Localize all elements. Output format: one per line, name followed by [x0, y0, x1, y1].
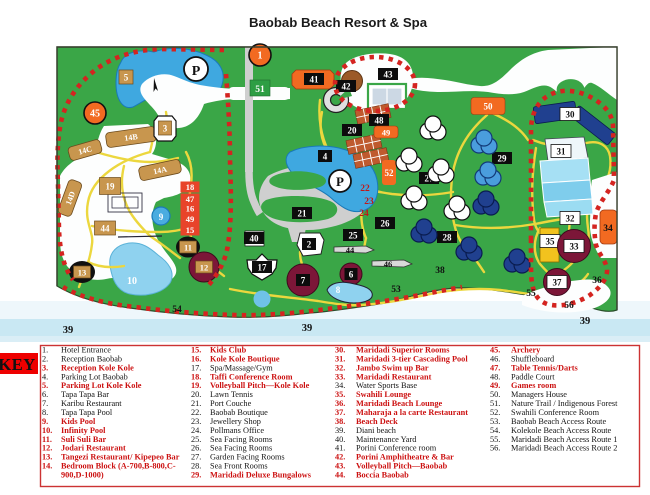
- svg-text:39.: 39.: [335, 426, 345, 435]
- svg-text:41.: 41.: [335, 444, 345, 453]
- svg-text:Tangezi Restaurant/ Kipepeo Ba: Tangezi Restaurant/ Kipepeo Bar: [61, 453, 180, 462]
- svg-text:22.: 22.: [191, 408, 201, 417]
- svg-text:49: 49: [382, 127, 391, 137]
- svg-text:30.: 30.: [335, 346, 345, 355]
- svg-text:Maridadi Beach Access Route 2: Maridadi Beach Access Route 2: [511, 444, 617, 453]
- svg-text:Maharaja a la carte Restaurant: Maharaja a la carte Restaurant: [356, 408, 468, 417]
- svg-text:12.: 12.: [42, 444, 52, 453]
- svg-text:47.: 47.: [490, 363, 500, 372]
- svg-text:Reception Kole Kole: Reception Kole Kole: [61, 363, 134, 372]
- svg-text:Porini Conference room: Porini Conference room: [356, 444, 437, 453]
- svg-text:44.: 44.: [335, 471, 345, 480]
- svg-text:P: P: [336, 174, 344, 189]
- svg-text:43: 43: [384, 69, 394, 79]
- svg-text:7.: 7.: [42, 399, 48, 408]
- svg-text:44: 44: [101, 223, 111, 233]
- svg-text:Maridadi 3-tier Cascading Pool: Maridadi 3-tier Cascading Pool: [356, 354, 468, 363]
- svg-text:Tapa Tapa Pool: Tapa Tapa Pool: [61, 408, 113, 417]
- svg-text:33: 33: [570, 241, 580, 251]
- svg-text:Porini Amphitheatre & Bar: Porini Amphitheatre & Bar: [356, 453, 454, 462]
- svg-text:28: 28: [443, 232, 453, 242]
- svg-text:50.: 50.: [490, 390, 500, 399]
- svg-text:Jambo Swim up Bar: Jambo Swim up Bar: [356, 363, 429, 372]
- svg-text:Jewellery Shop: Jewellery Shop: [210, 417, 261, 426]
- svg-text:56: 56: [564, 301, 574, 311]
- svg-text:52: 52: [385, 168, 395, 178]
- svg-text:Lawn Tennis: Lawn Tennis: [210, 390, 253, 399]
- svg-text:2.: 2.: [42, 354, 48, 363]
- svg-text:42: 42: [342, 81, 352, 91]
- svg-text:2: 2: [307, 239, 312, 249]
- svg-text:Games room: Games room: [511, 381, 556, 390]
- svg-text:39: 39: [580, 316, 591, 327]
- svg-text:22: 22: [360, 184, 370, 194]
- svg-text:23: 23: [364, 197, 374, 207]
- svg-text:28.: 28.: [191, 462, 201, 471]
- svg-text:Bedroom Block (A-700,B-800,C-: Bedroom Block (A-700,B-800,C-: [61, 462, 176, 471]
- svg-text:Nature Trail / Indigenous Fore: Nature Trail / Indigenous Forest: [511, 399, 618, 408]
- svg-text:Reception Baobab: Reception Baobab: [61, 354, 122, 363]
- svg-text:Pollmans Office: Pollmans Office: [210, 426, 264, 435]
- svg-text:48.: 48.: [490, 372, 500, 381]
- svg-text:Water Sports Base: Water Sports Base: [356, 381, 417, 390]
- svg-text:Garden Facing Rooms: Garden Facing Rooms: [210, 453, 285, 462]
- svg-text:4.: 4.: [42, 372, 48, 381]
- svg-text:KEY: KEY: [0, 355, 36, 374]
- svg-text:Swahili Lounge: Swahili Lounge: [356, 390, 411, 399]
- svg-text:40.: 40.: [335, 435, 345, 444]
- svg-text:Kolekole Beach Access Route: Kolekole Beach Access Route: [511, 426, 612, 435]
- svg-text:Sea Facing Rooms: Sea Facing Rooms: [210, 444, 272, 453]
- svg-text:42.: 42.: [335, 453, 345, 462]
- svg-text:21.: 21.: [191, 399, 201, 408]
- svg-text:15: 15: [186, 225, 195, 235]
- svg-text:Parking Lot Baobab: Parking Lot Baobab: [61, 372, 128, 381]
- svg-text:25: 25: [349, 230, 359, 240]
- svg-text:26.: 26.: [191, 444, 201, 453]
- svg-text:12: 12: [200, 262, 209, 272]
- svg-text:24.: 24.: [191, 426, 201, 435]
- svg-text:10.: 10.: [42, 426, 52, 435]
- svg-text:33.: 33.: [335, 372, 345, 381]
- svg-text:17: 17: [258, 262, 268, 272]
- svg-text:34.: 34.: [335, 381, 345, 390]
- svg-text:19: 19: [106, 181, 116, 191]
- svg-text:Volleyball Pitch—Baobab: Volleyball Pitch—Baobab: [356, 462, 448, 471]
- svg-text:47: 47: [186, 194, 195, 204]
- svg-text:18: 18: [186, 182, 195, 192]
- svg-text:29.: 29.: [191, 471, 201, 480]
- svg-text:15.: 15.: [191, 346, 201, 355]
- svg-text:21: 21: [298, 208, 308, 218]
- svg-text:50: 50: [484, 101, 494, 111]
- svg-text:6.: 6.: [42, 390, 48, 399]
- svg-text:Beach Deck: Beach Deck: [356, 417, 398, 426]
- svg-text:Shuffleboard: Shuffleboard: [511, 354, 555, 363]
- svg-text:Hotel Entrance: Hotel Entrance: [61, 346, 111, 355]
- svg-text:10: 10: [127, 276, 137, 287]
- svg-text:32.: 32.: [335, 363, 345, 372]
- svg-text:35.: 35.: [335, 390, 345, 399]
- svg-text:38: 38: [435, 266, 445, 276]
- svg-text:Spa/Massage/Gym: Spa/Massage/Gym: [210, 363, 273, 372]
- svg-text:Maridadi Superior Rooms: Maridadi Superior Rooms: [356, 346, 450, 355]
- svg-text:20: 20: [348, 125, 358, 135]
- svg-text:51.: 51.: [490, 399, 500, 408]
- svg-text:Kids Pool: Kids Pool: [61, 417, 96, 426]
- svg-text:52.: 52.: [490, 408, 500, 417]
- svg-text:53.: 53.: [490, 417, 500, 426]
- svg-text:Maintenance Yard: Maintenance Yard: [356, 435, 417, 444]
- svg-text:3: 3: [163, 123, 168, 133]
- svg-text:46.: 46.: [490, 354, 500, 363]
- svg-text:29: 29: [498, 153, 508, 163]
- svg-text:8.: 8.: [42, 408, 48, 417]
- svg-text:11.: 11.: [42, 435, 52, 444]
- svg-text:13.: 13.: [42, 453, 52, 462]
- svg-text:Swahili Conference Room: Swahili Conference Room: [511, 408, 600, 417]
- svg-text:45.: 45.: [490, 346, 500, 355]
- svg-text:1.: 1.: [42, 346, 48, 355]
- svg-text:45: 45: [90, 109, 100, 120]
- svg-text:37.: 37.: [335, 408, 345, 417]
- svg-text:1: 1: [258, 51, 263, 62]
- svg-text:38.: 38.: [335, 417, 345, 426]
- svg-text:Baobab Beach Access Route: Baobab Beach Access Route: [511, 417, 606, 426]
- svg-text:43.: 43.: [335, 462, 345, 471]
- svg-text:Volleyball Pitch—Kole Kole: Volleyball Pitch—Kole Kole: [210, 381, 310, 390]
- svg-text:Suli Suli Bar: Suli Suli Bar: [61, 435, 107, 444]
- svg-text:55.: 55.: [490, 435, 500, 444]
- svg-text:Baobab Beach Resort & Spa: Baobab Beach Resort & Spa: [249, 15, 428, 30]
- svg-text:53: 53: [391, 285, 401, 295]
- svg-text:55: 55: [526, 289, 536, 299]
- svg-text:Jodari Restaurant: Jodari Restaurant: [61, 444, 126, 453]
- svg-text:34: 34: [603, 224, 613, 234]
- svg-text:23.: 23.: [191, 417, 201, 426]
- svg-text:26: 26: [381, 218, 391, 228]
- svg-text:31: 31: [557, 146, 567, 156]
- svg-text:49: 49: [186, 214, 195, 224]
- svg-text:49.: 49.: [490, 381, 500, 390]
- svg-text:Maridadi Restaurant: Maridadi Restaurant: [356, 372, 432, 381]
- svg-text:17.: 17.: [191, 363, 201, 372]
- svg-text:4: 4: [323, 151, 328, 161]
- svg-text:900,D-1000): 900,D-1000): [61, 471, 104, 480]
- svg-text:54: 54: [172, 305, 182, 315]
- svg-text:16.: 16.: [191, 354, 201, 363]
- svg-text:Kids Club: Kids Club: [210, 346, 247, 355]
- svg-text:Sea Front Rooms: Sea Front Rooms: [210, 462, 268, 471]
- svg-text:7: 7: [301, 275, 306, 285]
- svg-text:5: 5: [124, 72, 129, 82]
- svg-text:14.: 14.: [42, 462, 52, 471]
- svg-text:39: 39: [302, 323, 313, 334]
- svg-text:44: 44: [346, 245, 355, 255]
- svg-text:Tapa Tapa Bar: Tapa Tapa Bar: [61, 390, 109, 399]
- svg-text:Managers House: Managers House: [511, 390, 567, 399]
- svg-text:Karibu Restaurant: Karibu Restaurant: [61, 399, 122, 408]
- svg-text:41: 41: [310, 74, 320, 84]
- svg-text:Archery: Archery: [511, 346, 541, 355]
- svg-text:Parking Lot Kole Kole: Parking Lot Kole Kole: [61, 381, 142, 390]
- svg-text:6: 6: [349, 269, 354, 279]
- svg-text:Kole Kole Boutique: Kole Kole Boutique: [210, 354, 280, 363]
- svg-text:51: 51: [255, 85, 265, 95]
- svg-text:25.: 25.: [191, 435, 201, 444]
- svg-text:Port Couche: Port Couche: [210, 399, 252, 408]
- svg-text:31.: 31.: [335, 354, 345, 363]
- svg-text:9.: 9.: [42, 417, 48, 426]
- svg-text:40: 40: [250, 233, 260, 243]
- svg-text:54.: 54.: [490, 426, 500, 435]
- svg-text:Maridadi Beach Lounge: Maridadi Beach Lounge: [356, 399, 443, 408]
- svg-text:56.: 56.: [490, 444, 500, 453]
- svg-text:27.: 27.: [191, 453, 201, 462]
- svg-text:Paddle Court: Paddle Court: [511, 372, 555, 381]
- svg-text:Diani beach: Diani beach: [356, 426, 397, 435]
- svg-text:8: 8: [336, 285, 341, 295]
- svg-text:5.: 5.: [42, 381, 48, 390]
- svg-text:30: 30: [566, 109, 576, 119]
- svg-text:24: 24: [359, 209, 369, 219]
- svg-text:20.: 20.: [191, 390, 201, 399]
- svg-text:11: 11: [184, 242, 192, 252]
- svg-text:16: 16: [186, 204, 195, 214]
- svg-text:Boccia Baobab: Boccia Baobab: [356, 471, 409, 480]
- svg-text:37: 37: [553, 277, 563, 287]
- svg-text:Maridadi Deluxe Bungalows: Maridadi Deluxe Bungalows: [210, 471, 312, 480]
- svg-text:36: 36: [592, 276, 602, 286]
- svg-text:19.: 19.: [191, 381, 201, 390]
- svg-text:46: 46: [384, 259, 393, 269]
- svg-text:Infinity Pool: Infinity Pool: [61, 426, 106, 435]
- svg-text:Sea Facing Rooms: Sea Facing Rooms: [210, 435, 272, 444]
- svg-text:Table Tennis/Darts: Table Tennis/Darts: [511, 363, 579, 372]
- svg-text:3.: 3.: [42, 363, 48, 372]
- svg-text:35: 35: [546, 236, 556, 246]
- svg-text:18.: 18.: [191, 372, 201, 381]
- svg-text:13: 13: [78, 267, 87, 277]
- svg-text:Maridadi Beach Access Route 1: Maridadi Beach Access Route 1: [511, 435, 617, 444]
- svg-text:Baobab Boutique: Baobab Boutique: [210, 408, 268, 417]
- svg-text:32: 32: [566, 213, 576, 223]
- svg-text:39: 39: [63, 325, 74, 336]
- svg-text:48: 48: [375, 115, 385, 125]
- svg-text:Taffi Conference Room: Taffi Conference Room: [210, 372, 293, 381]
- svg-text:9: 9: [159, 212, 164, 222]
- svg-text:P: P: [192, 64, 201, 79]
- svg-text:36.: 36.: [335, 399, 345, 408]
